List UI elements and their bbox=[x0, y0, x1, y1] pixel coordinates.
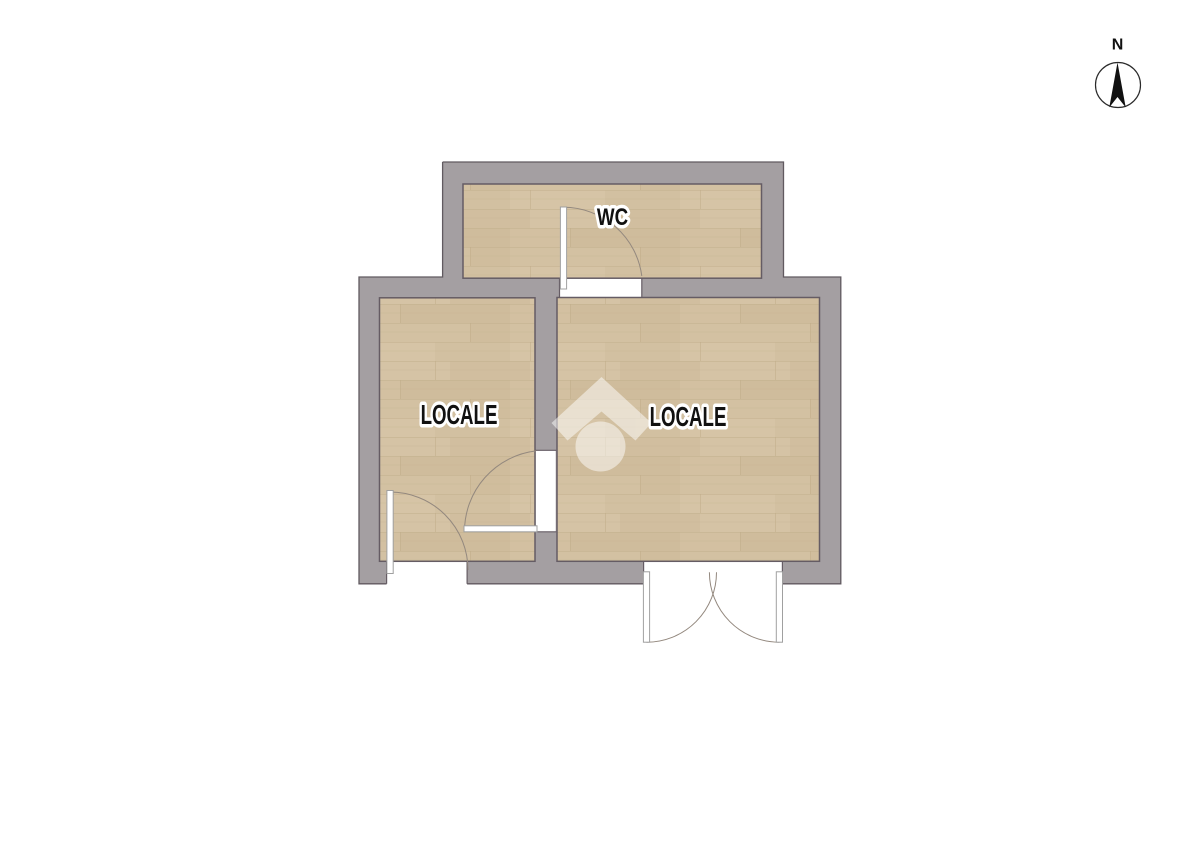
svg-text:LOCALE: LOCALE bbox=[421, 399, 498, 429]
svg-text:WC: WC bbox=[597, 204, 628, 231]
svg-text:LOCALE: LOCALE bbox=[650, 401, 727, 431]
svg-text:N: N bbox=[1112, 37, 1124, 54]
